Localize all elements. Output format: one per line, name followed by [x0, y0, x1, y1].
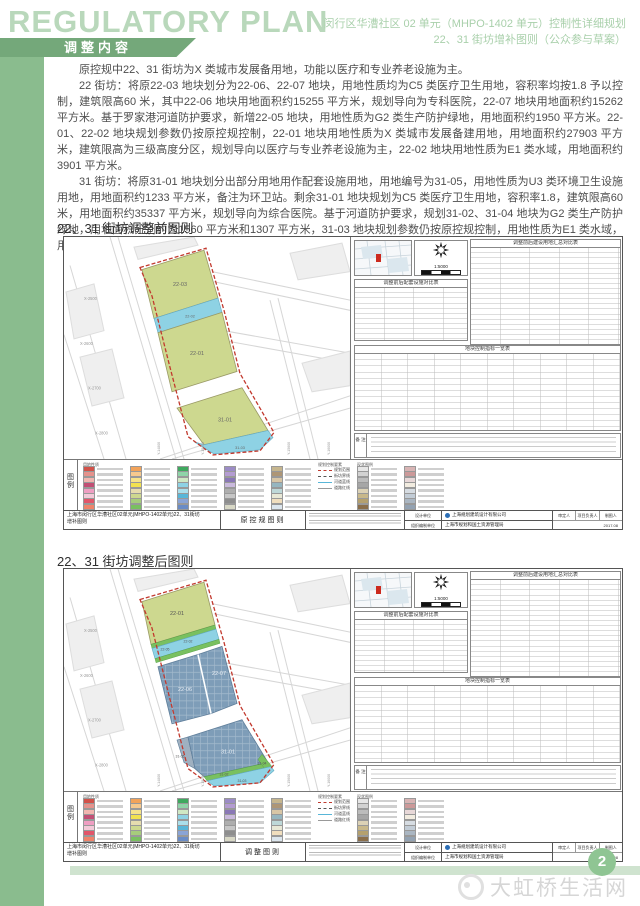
- svg-text:X-2600: X-2600: [80, 341, 94, 346]
- unit-labels: 设计单位 组织编制单位: [405, 511, 442, 529]
- svg-text:X-2800: X-2800: [95, 431, 109, 436]
- section-title-before: 22、31 街坊调整前图则: [57, 218, 194, 237]
- unit-names: 上海规划建筑设计有限公司 上海市规划和国土资源管理局: [442, 511, 553, 529]
- facility-compare-table: 调整前后配套设施对比表: [354, 279, 468, 341]
- unit-labels: 设计单位 组织编制单位: [405, 843, 442, 861]
- parcel-label: 22-05: [161, 647, 170, 651]
- unit-names: 上海规划建筑设计有限公司 上海市规划和国土资源管理局: [442, 843, 553, 861]
- scale-bar: [421, 270, 461, 275]
- sheet-date: 2017.08: [553, 520, 622, 529]
- svg-text:X-2600: X-2600: [80, 673, 94, 678]
- map-legend: 图 例 用地性质 规划控制要素 规划范围街坊界线河道蓝线道路红线 现状图例: [64, 791, 622, 843]
- notes-box: 备 注: [354, 765, 621, 790]
- facility-compare-table: 调整前后配套设施对比表: [354, 611, 468, 673]
- svg-text:X-2500: X-2500: [84, 296, 98, 301]
- control-index-table: 地块控制指标一览表: [354, 345, 621, 431]
- parcel-label: 22-01: [190, 351, 204, 357]
- map-data-panel: 1:5000 调整前后建设用地汇总对比表 调整前后配套设施对比表 地块控制指标一…: [350, 237, 622, 459]
- regulatory-plan-logo: REGULATORY PLAN: [8, 4, 328, 40]
- svg-text:Y-15600: Y-15600: [287, 442, 291, 455]
- landuse-compare-table: 调整前后建设用地汇总对比表: [470, 571, 621, 677]
- svg-text:Y-14800: Y-14800: [157, 442, 161, 455]
- project-name: 上海市闵行区华漕社区02单元(MHPO-1402单元)22、31街坊 增补图则: [64, 843, 221, 861]
- parcel-label: 31-05: [176, 754, 185, 758]
- svg-text:Y-15200: Y-15200: [201, 442, 205, 455]
- document-title-line2: 22、31 街坊增补图则（公众参与草案）: [323, 32, 626, 48]
- parcel-label: 22-02: [185, 314, 195, 318]
- sheet-type-label: 原控规图则: [221, 511, 306, 529]
- svg-text:X-2700: X-2700: [88, 718, 102, 723]
- legend-swatches: [83, 799, 311, 841]
- svg-text:X-2500: X-2500: [84, 628, 98, 633]
- map-drawing-before: 22-03 22-02 22-01 31-01 31-03 X-2500 X-2…: [64, 237, 350, 459]
- map-figure-after: 22-01 22-05 22-02 22-06 22-07 31-01 31-0…: [63, 568, 623, 862]
- map-scale: 1:5000: [415, 596, 467, 601]
- parcel-label: 31-03: [235, 446, 245, 450]
- title-block: 上海市闵行区华漕社区02单元(MHPO-1402单元)22、31街坊 增补图则 …: [64, 842, 622, 861]
- svg-text:Y-15600: Y-15600: [287, 774, 291, 787]
- left-green-sidebar: [0, 57, 44, 906]
- svg-text:X-2700: X-2700: [88, 386, 102, 391]
- title-block-notes: [306, 511, 405, 529]
- svg-text:Y-16000: Y-16000: [327, 442, 331, 455]
- company-logo-icon: [445, 513, 450, 518]
- notes-box: 备 注: [354, 433, 621, 458]
- document-page: REGULATORY PLAN 闵行区华漕社区 02 单元（MHPO-1402 …: [0, 0, 640, 906]
- map-legend: 图 例 用地性质 规划控制要素 规划范围街坊界线河道蓝线道路红线 现状图例: [64, 459, 622, 511]
- inset-highlight: [376, 254, 381, 262]
- location-inset-map: [354, 240, 412, 276]
- parcel-label: 31-02: [220, 773, 229, 777]
- map-drawing-after: 22-01 22-05 22-02 22-06 22-07 31-01 31-0…: [64, 569, 350, 791]
- scale-bar: [421, 602, 461, 607]
- legend-misc-swatches: [357, 467, 444, 509]
- project-name: 上海市闵行区华漕社区02单元(MHPO-1402单元)22、31街坊 增补图则: [64, 511, 221, 529]
- tab-adjustment-content: 调整内容: [0, 38, 196, 57]
- map-data-panel: 1:5000 调整前后建设用地汇总对比表 调整前后配套设施对比表 地块控制指标一…: [350, 569, 622, 791]
- parcel-label: 31-03: [238, 779, 247, 783]
- document-title: 闵行区华漕社区 02 单元（MHPO-1402 单元）控制性详细规划 22、31…: [323, 16, 626, 48]
- map-scale: 1:5000: [415, 264, 467, 269]
- svg-text:Y-15200: Y-15200: [201, 774, 205, 787]
- legend-swatches: [83, 467, 311, 509]
- legend-control-items: 规划范围街坊界线河道蓝线道路红线: [318, 467, 350, 491]
- svg-text:Y-14800: Y-14800: [157, 774, 161, 787]
- watermark-text: 大虹桥生活网: [490, 872, 628, 902]
- parcel-label: 31-01: [218, 417, 232, 423]
- parcel-label: 22-02: [184, 639, 193, 643]
- sheet-type-label: 调整图则: [221, 843, 306, 861]
- staff-cells: 审定人 项目负责人 制图人 2017.08: [553, 511, 622, 529]
- parcel-label: 22-06: [178, 687, 192, 693]
- north-arrow: 1:5000: [414, 572, 468, 608]
- inset-highlight: [376, 586, 381, 594]
- parcel-label: 31-01: [221, 749, 235, 755]
- watermark: 大虹桥生活网: [458, 872, 628, 902]
- legend-misc-swatches: [357, 799, 444, 841]
- parcel-label: 31-04: [258, 761, 267, 765]
- parcel-label: 22-01: [170, 611, 184, 617]
- paragraph-block-22: 22 街坊：将原22-03 地块划分为22-06、22-07 地块，用地性质均为…: [57, 78, 623, 174]
- legend-control-items: 规划范围街坊界线河道蓝线道路红线: [318, 799, 350, 823]
- location-inset-map: [354, 572, 412, 608]
- parcel-label: 22-03: [173, 282, 187, 288]
- landuse-compare-table: 调整前后建设用地汇总对比表: [470, 239, 621, 345]
- title-block-notes: [306, 843, 405, 861]
- map-figure-before: 22-03 22-02 22-01 31-01 31-03 X-2500 X-2…: [63, 236, 623, 530]
- control-index-table: 地块控制指标一览表: [354, 677, 621, 763]
- svg-text:X-2800: X-2800: [95, 763, 109, 768]
- watermark-logo-icon: [458, 874, 484, 900]
- document-title-line1: 闵行区华漕社区 02 单元（MHPO-1402 单元）控制性详细规划: [323, 16, 626, 32]
- paragraph-intro: 原控规中22、31 街坊为X 类城市发展备用地，功能以医疗和专业养老设施为主。: [57, 62, 623, 78]
- title-block: 上海市闵行区华漕社区02单元(MHPO-1402单元)22、31街坊 增补图则 …: [64, 510, 622, 529]
- north-arrow: 1:5000: [414, 240, 468, 276]
- svg-text:Y-16000: Y-16000: [327, 774, 331, 787]
- parcel-label: 22-07: [212, 671, 226, 677]
- company-logo-icon: [445, 845, 450, 850]
